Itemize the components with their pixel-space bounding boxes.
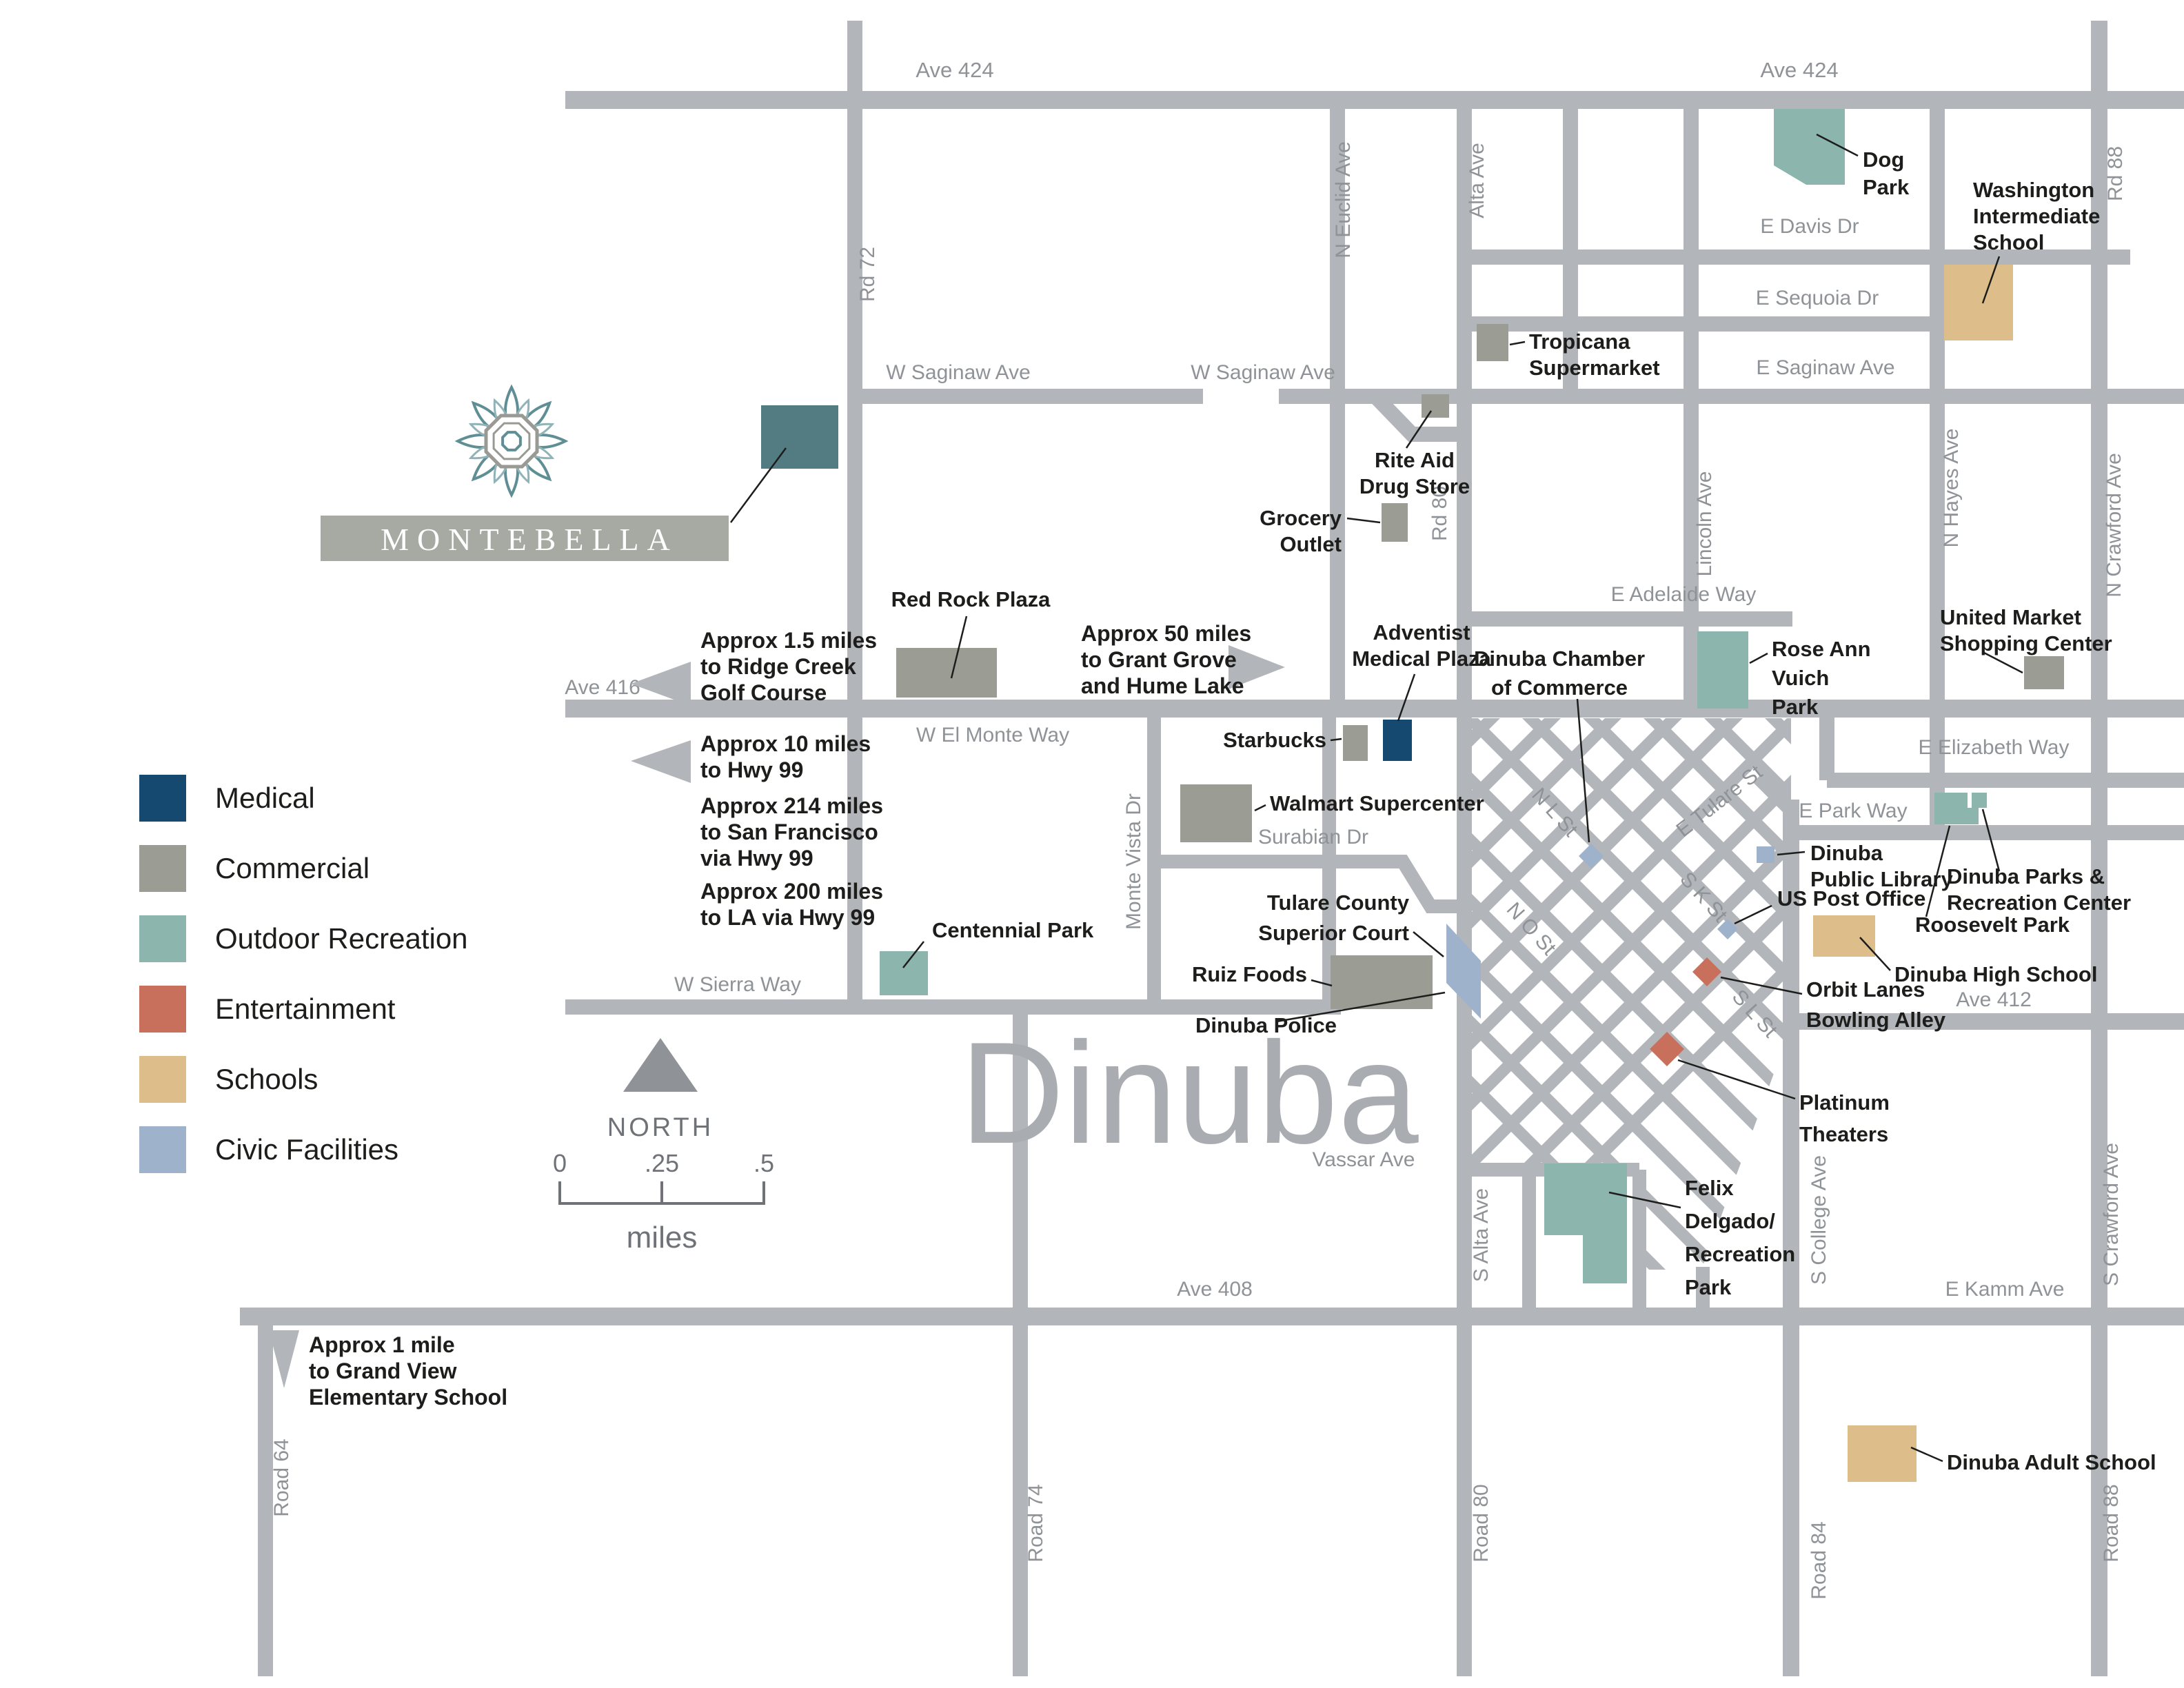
map-page: Ave 424 Ave 424 Rd 72 N Euclid Ave Alta … bbox=[0, 0, 2184, 1688]
legend-label-civic: Civic Facilities bbox=[215, 1133, 398, 1166]
street-label-road64: Road 64 bbox=[270, 1438, 293, 1516]
poi-united-market: United Market Shopping Center bbox=[1940, 605, 2112, 689]
street-label-ave424-left: Ave 424 bbox=[916, 58, 993, 82]
grocery-outlet-callout bbox=[1347, 518, 1380, 522]
legend-swatch-commercial bbox=[139, 845, 186, 892]
street-label-ave408: Ave 408 bbox=[1177, 1278, 1253, 1301]
rite-aid-label: Rite Aid bbox=[1375, 448, 1455, 472]
superior-court-label: Tulare County bbox=[1267, 891, 1410, 915]
united-market-label: Shopping Center bbox=[1940, 631, 2112, 655]
centennial-shape bbox=[880, 951, 928, 995]
vuich-park-label: Rose Ann bbox=[1772, 637, 1871, 661]
red-rock-shape bbox=[896, 648, 997, 698]
parks-rec-shape bbox=[1972, 793, 1987, 808]
street-label-s-crawford: S Crawford Ave bbox=[2100, 1143, 2123, 1286]
legend-label-commercial: Commercial bbox=[215, 852, 370, 884]
street-label-w-sierra: W Sierra Way bbox=[674, 973, 801, 996]
library-label: Dinuba bbox=[1810, 841, 1883, 865]
note-grant-text: Approx 50 miles bbox=[1081, 621, 1251, 646]
parks-rec-label: Dinuba Parks & bbox=[1947, 864, 2105, 888]
chamber-label: of Commerce bbox=[1491, 675, 1628, 700]
dinuba-amenities-map: Ave 424 Ave 424 Rd 72 N Euclid Ave Alta … bbox=[0, 0, 2184, 1688]
street-label-alta: Alta Ave bbox=[1466, 143, 1488, 218]
scale-unit-label: miles bbox=[627, 1221, 698, 1254]
street-label-road88: Road 88 bbox=[2100, 1484, 2123, 1562]
orbit-label: Orbit Lanes bbox=[1806, 977, 1925, 1001]
street-label-e-park: E Park Way bbox=[1799, 800, 1907, 822]
scale-tick-5: .5 bbox=[754, 1149, 774, 1177]
scale-bar-line bbox=[560, 1181, 764, 1203]
platinum-label: Theaters bbox=[1799, 1122, 1888, 1146]
scale-tick-0: 0 bbox=[553, 1149, 567, 1177]
poi-centennial: Centennial Park bbox=[880, 918, 1094, 995]
brand-block: MONTEBELLA bbox=[321, 383, 838, 561]
note-grand-view: Approx 1 mile to Grand View Elementary S… bbox=[269, 1330, 507, 1410]
orbit-label: Bowling Alley bbox=[1806, 1008, 1946, 1032]
street-label-ave424-right: Ave 424 bbox=[1760, 58, 1838, 82]
street-label-e-davis: E Davis Dr bbox=[1760, 215, 1859, 238]
dog-park-label: Park bbox=[1863, 175, 1910, 199]
scale-bar: 0 .25 .5 miles bbox=[553, 1149, 774, 1254]
note-sf-text: to San Francisco bbox=[700, 820, 878, 844]
note-ridge-text: to Ridge Creek bbox=[700, 654, 856, 679]
street-label-surabian: Surabian Dr bbox=[1258, 826, 1368, 848]
montebella-logo-icon bbox=[454, 383, 569, 498]
legend-item-entertainment: Entertainment bbox=[139, 986, 396, 1033]
street-label-ave412: Ave 412 bbox=[1956, 988, 2032, 1011]
parks-rec-label: Recreation Center bbox=[1947, 891, 2131, 915]
platinum-callout bbox=[1678, 1060, 1795, 1099]
tropicana-shape bbox=[1477, 324, 1508, 361]
post-office-label: US Post Office bbox=[1777, 886, 1925, 911]
felix-label: Park bbox=[1685, 1275, 1732, 1299]
starbucks-label: Starbucks bbox=[1223, 728, 1326, 752]
note-hwy99: Approx 10 miles to Hwy 99 bbox=[631, 731, 871, 783]
adventist-label: Adventist bbox=[1373, 620, 1470, 644]
walmart-label: Walmart Supercenter bbox=[1270, 791, 1484, 815]
note-ridge-creek: Approx 1.5 miles to Ridge Creek Golf Cou… bbox=[631, 628, 877, 706]
poi-felix: Felix Delgado/ Recreation Park bbox=[1544, 1163, 1795, 1299]
street-label-e-kamm: E Kamm Ave bbox=[1945, 1278, 2065, 1301]
rite-aid-label: Drug Store bbox=[1359, 474, 1470, 498]
vuich-park-label: Park bbox=[1772, 695, 1819, 719]
legend-swatch-schools bbox=[139, 1056, 186, 1103]
note-ridge-text: Golf Course bbox=[700, 680, 827, 705]
poi-red-rock: Red Rock Plaza bbox=[891, 587, 1051, 698]
legend-item-commercial: Commercial bbox=[139, 845, 370, 892]
north-label: NORTH bbox=[607, 1113, 714, 1142]
adult-school-label: Dinuba Adult School bbox=[1947, 1450, 2156, 1474]
left-arrow-icon bbox=[631, 740, 691, 783]
vuich-park-shape bbox=[1697, 631, 1748, 709]
felix-label: Recreation bbox=[1685, 1242, 1795, 1266]
street-label-n-hayes: N Hayes Ave bbox=[1940, 429, 1963, 548]
legend-swatch-civic bbox=[139, 1126, 186, 1173]
left-arrow-icon bbox=[631, 662, 691, 706]
ruiz-shape bbox=[1331, 955, 1433, 1009]
legend-swatch-medical bbox=[139, 775, 186, 822]
note-grant-grove: Approx 50 miles to Grant Grove and Hume … bbox=[1081, 621, 1285, 698]
platinum-label: Platinum bbox=[1799, 1090, 1890, 1115]
library-shape bbox=[1757, 846, 1775, 863]
chamber-label: Dinuba Chamber bbox=[1474, 647, 1645, 671]
north-arrow-icon bbox=[623, 1038, 698, 1092]
legend-item-medical: Medical bbox=[139, 775, 315, 822]
note-la-text: to LA via Hwy 99 bbox=[700, 905, 875, 930]
washington-school-label: Intermediate bbox=[1973, 204, 2100, 228]
street-label-s-alta: S Alta Ave bbox=[1470, 1188, 1493, 1282]
vuich-park-callout bbox=[1750, 653, 1768, 663]
street-label-lincoln: Lincoln Ave bbox=[1693, 471, 1716, 577]
legend-label-schools: Schools bbox=[215, 1063, 318, 1095]
walmart-callout bbox=[1255, 805, 1266, 811]
poi-tropicana: Tropicana Supermarket bbox=[1477, 324, 1660, 380]
legend-label-outdoor: Outdoor Recreation bbox=[215, 922, 468, 955]
street-label-e-elizabeth: E Elizabeth Way bbox=[1919, 736, 2070, 759]
compass: NORTH bbox=[607, 1038, 714, 1142]
tropicana-label: Tropicana bbox=[1529, 329, 1630, 354]
poi-grocery-outlet: Grocery Outlet bbox=[1260, 503, 1408, 556]
legend-item-outdoor: Outdoor Recreation bbox=[139, 915, 468, 962]
grocery-outlet-label: Grocery bbox=[1260, 506, 1342, 530]
felix-shape bbox=[1544, 1163, 1627, 1283]
roosevelt-label: Roosevelt Park bbox=[1915, 913, 2070, 937]
street-label-s-college: S College Ave bbox=[1808, 1155, 1830, 1285]
washington-school-shape bbox=[1944, 265, 2013, 340]
felix-label: Delgado/ bbox=[1685, 1209, 1775, 1233]
street-label-w-saginaw-right: W Saginaw Ave bbox=[1191, 361, 1335, 384]
note-hwy99-text: to Hwy 99 bbox=[700, 757, 803, 782]
down-arrow-icon bbox=[269, 1330, 299, 1388]
adult-school-shape bbox=[1848, 1425, 1917, 1482]
grocery-outlet-label: Outlet bbox=[1280, 532, 1342, 556]
street-label-ave416: Ave 416 bbox=[565, 676, 640, 699]
note-hwy99-text: Approx 10 miles bbox=[700, 731, 871, 756]
centennial-label: Centennial Park bbox=[932, 918, 1094, 942]
montebella-callout bbox=[731, 448, 786, 522]
street-label-road84: Road 84 bbox=[1808, 1521, 1830, 1599]
legend-swatch-entertainment bbox=[139, 986, 186, 1033]
street-label-e-sequoia: E Sequoia Dr bbox=[1756, 287, 1879, 309]
legend-item-civic: Civic Facilities bbox=[139, 1126, 398, 1173]
street-label-road80: Road 80 bbox=[1470, 1484, 1493, 1562]
superior-court-callout bbox=[1413, 932, 1444, 957]
note-grandview-text: Approx 1 mile bbox=[309, 1332, 455, 1357]
street-label-road74: Road 74 bbox=[1024, 1484, 1047, 1562]
street-label-monte-vista: Monte Vista Dr bbox=[1122, 793, 1145, 930]
montebella-site-marker bbox=[761, 405, 838, 469]
city-label: Dinuba bbox=[960, 1012, 1419, 1174]
tropicana-callout bbox=[1510, 342, 1525, 345]
street-label-w-saginaw-left: W Saginaw Ave bbox=[886, 361, 1031, 384]
legend-label-entertainment: Entertainment bbox=[215, 993, 396, 1025]
poi-starbucks: Starbucks bbox=[1223, 725, 1368, 761]
note-sf-text: via Hwy 99 bbox=[700, 846, 813, 871]
scale-tick-25: .25 bbox=[645, 1149, 679, 1177]
legend-label-medical: Medical bbox=[215, 782, 315, 814]
united-market-shape bbox=[2024, 656, 2064, 689]
legend-item-schools: Schools bbox=[139, 1056, 318, 1103]
washington-school-label: School bbox=[1973, 230, 2044, 254]
poi-layer: Dog Park Washington Intermediate School … bbox=[880, 109, 2156, 1482]
note-la-text: Approx 200 miles bbox=[700, 879, 883, 904]
montebella-wordmark: MONTEBELLA bbox=[381, 522, 678, 557]
poi-dog-park: Dog Park bbox=[1774, 109, 1910, 199]
tropicana-label: Supermarket bbox=[1529, 356, 1660, 380]
note-grandview-text: Elementary School bbox=[309, 1385, 507, 1410]
ruiz-label: Ruiz Foods bbox=[1192, 962, 1307, 986]
street-label-e-adelaide: E Adelaide Way bbox=[1611, 583, 1757, 606]
rite-aid-shape bbox=[1422, 394, 1449, 418]
note-grant-text: to Grant Grove bbox=[1081, 647, 1237, 672]
note-ridge-text: Approx 1.5 miles bbox=[700, 628, 877, 653]
street-label-n-crawford: N Crawford Ave bbox=[2103, 453, 2125, 598]
street-label-rd72: Rd 72 bbox=[856, 247, 879, 302]
legend: Medical Commercial Outdoor Recreation En… bbox=[139, 775, 468, 1173]
street-label-e-saginaw: E Saginaw Ave bbox=[1756, 356, 1894, 379]
street-label-w-el-monte: W El Monte Way bbox=[916, 724, 1069, 746]
street-label-rd88: Rd 88 bbox=[2104, 146, 2127, 201]
united-market-label: United Market bbox=[1940, 605, 2081, 629]
red-rock-label: Red Rock Plaza bbox=[891, 587, 1051, 611]
vuich-park-label: Vuich bbox=[1772, 666, 1829, 690]
dog-park-label: Dog bbox=[1863, 148, 1904, 172]
poi-adult-school: Dinuba Adult School bbox=[1848, 1425, 2156, 1482]
washington-school-label: Washington bbox=[1973, 178, 2094, 202]
note-grandview-text: to Grand View bbox=[309, 1359, 457, 1383]
starbucks-shape bbox=[1343, 725, 1368, 761]
walmart-shape bbox=[1180, 784, 1252, 842]
adventist-label: Medical Plaza bbox=[1352, 647, 1491, 671]
high-school-shape bbox=[1813, 915, 1875, 957]
poi-rite-aid: Rite Aid Drug Store bbox=[1359, 394, 1470, 498]
dog-park-shape bbox=[1774, 109, 1845, 185]
grocery-outlet-shape bbox=[1382, 503, 1408, 542]
street-label-n-euclid: N Euclid Ave bbox=[1332, 141, 1355, 258]
police-label: Dinuba Police bbox=[1195, 1013, 1337, 1037]
felix-label: Felix bbox=[1685, 1176, 1734, 1200]
superior-court-label: Superior Court bbox=[1258, 921, 1409, 945]
note-grant-text: and Hume Lake bbox=[1081, 673, 1244, 698]
note-sf-text: Approx 214 miles bbox=[700, 793, 883, 818]
legend-swatch-outdoor bbox=[139, 915, 186, 962]
adventist-shape bbox=[1383, 720, 1412, 761]
